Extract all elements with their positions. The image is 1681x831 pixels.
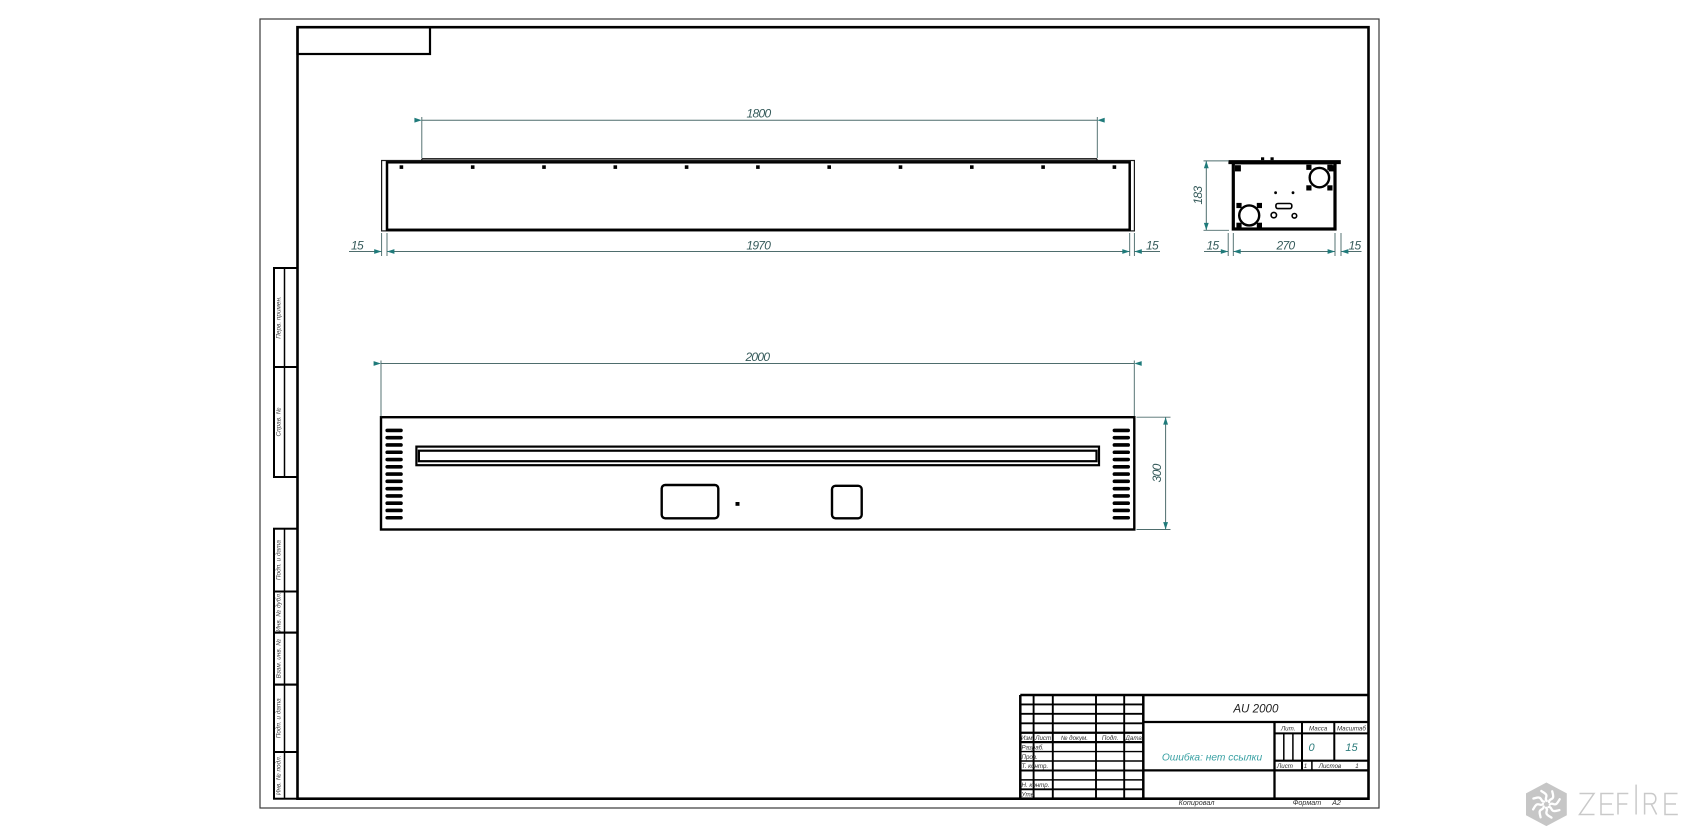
svg-text:Инв. № дубл.: Инв. № дубл.	[274, 592, 282, 631]
svg-text:15: 15	[1146, 238, 1159, 252]
svg-text:Масштаб: Масштаб	[1337, 726, 1366, 733]
svg-text:Разраб.: Разраб.	[1022, 744, 1044, 751]
svg-text:Копировал: Копировал	[1179, 798, 1215, 807]
svg-text:1800: 1800	[747, 106, 772, 120]
svg-text:Подп.: Подп.	[1102, 735, 1118, 742]
svg-text:1970: 1970	[746, 238, 771, 252]
svg-text:Лист: Лист	[1034, 735, 1051, 742]
svg-text:Пров.: Пров.	[1022, 754, 1038, 761]
svg-text:Изм: Изм	[1021, 735, 1033, 742]
svg-text:15: 15	[1345, 742, 1358, 754]
svg-text:Подп. и дата: Подп. и дата	[274, 540, 282, 580]
svg-text:1: 1	[1355, 763, 1358, 770]
svg-text:Лит.: Лит.	[1280, 726, 1296, 733]
svg-text:Перв. примен.: Перв. примен.	[275, 296, 282, 338]
svg-text:300: 300	[1150, 463, 1164, 482]
svg-text:Взам. инв. №: Взам. инв. №	[275, 639, 282, 679]
svg-text:Формат: Формат	[1293, 798, 1322, 807]
svg-text:Листов: Листов	[1318, 763, 1342, 770]
svg-text:15: 15	[1349, 238, 1362, 252]
svg-text:Н. контр.: Н. контр.	[1022, 782, 1050, 789]
svg-text:AU 2000: AU 2000	[1232, 703, 1279, 716]
svg-text:0: 0	[1308, 742, 1315, 754]
svg-text:15: 15	[351, 238, 364, 252]
svg-text:A2: A2	[1331, 798, 1341, 807]
svg-text:270: 270	[1276, 238, 1296, 252]
svg-text:Лист: Лист	[1276, 763, 1293, 770]
svg-text:Дата: Дата	[1125, 735, 1143, 742]
svg-text:Ошибка: нет ссылки: Ошибка: нет ссылки	[1162, 751, 1263, 763]
svg-text:Инв. № подл.: Инв. № подл.	[274, 756, 282, 796]
svg-text:Масса: Масса	[1309, 726, 1328, 733]
svg-text:183: 183	[1191, 186, 1205, 205]
svg-text:Справ. №: Справ. №	[275, 407, 282, 436]
svg-text:№ докум.: № докум.	[1061, 735, 1088, 742]
svg-text:Подп. и дата: Подп. и дата	[274, 698, 282, 738]
svg-text:Утв.: Утв.	[1021, 792, 1036, 799]
svg-text:Т. контр.: Т. контр.	[1022, 763, 1049, 770]
svg-text:15: 15	[1207, 238, 1220, 252]
svg-text:1: 1	[1304, 763, 1307, 770]
svg-text:2000: 2000	[744, 350, 770, 364]
